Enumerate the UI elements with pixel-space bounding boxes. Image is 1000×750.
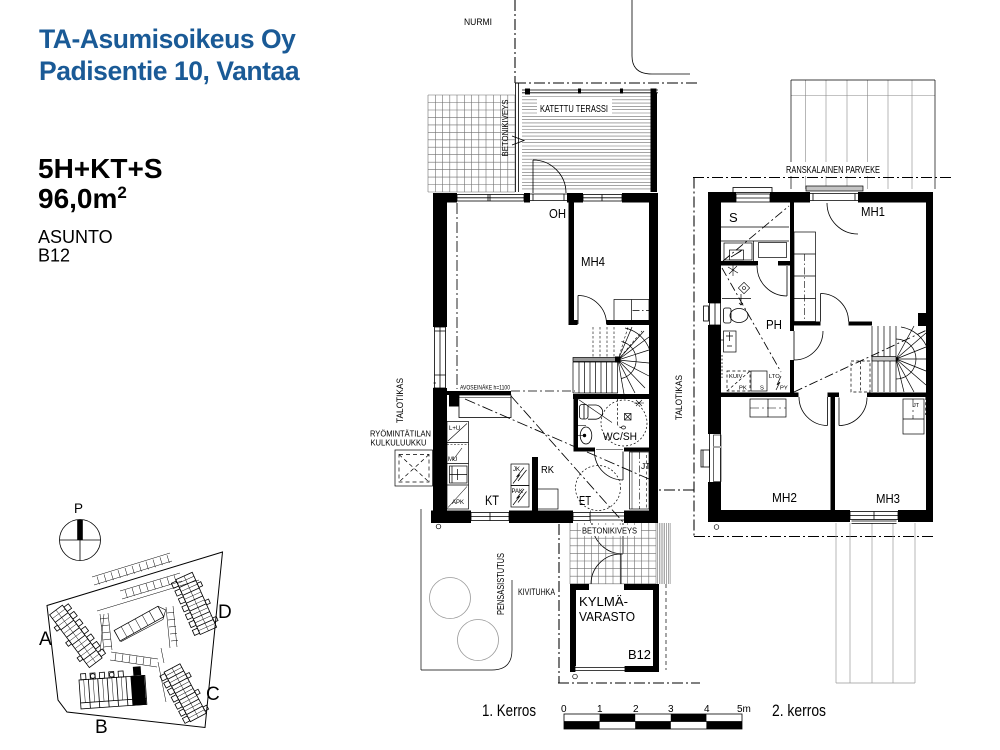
svg-text:B12: B12	[38, 246, 70, 266]
svg-text:KATETTU TERASSI: KATETTU TERASSI	[540, 104, 608, 115]
svg-text:C: C	[206, 684, 220, 705]
svg-text:0: 0	[561, 704, 567, 715]
svg-text:VARASTO: VARASTO	[579, 609, 635, 624]
svg-text:3: 3	[668, 704, 674, 715]
svg-text:TALOTIKAS: TALOTIKAS	[674, 375, 684, 420]
svg-text:KUIV: KUIV	[729, 374, 743, 380]
svg-text:JT: JT	[913, 403, 920, 409]
svg-text:OH: OH	[549, 206, 566, 221]
svg-text:2. kerros: 2. kerros	[772, 702, 826, 720]
svg-text:TA-Asumisoikeus Oy: TA-Asumisoikeus Oy	[39, 24, 296, 54]
svg-text:MU: MU	[448, 457, 457, 463]
svg-text:B: B	[95, 717, 108, 738]
svg-text:1. Kerros: 1. Kerros	[482, 702, 536, 720]
svg-text:1: 1	[597, 704, 603, 715]
svg-text:KULKULUUKKU: KULKULUUKKU	[371, 439, 427, 448]
svg-text:KIVITUHKA: KIVITUHKA	[518, 587, 555, 598]
svg-text:P: P	[74, 501, 83, 516]
svg-text:PY: PY	[780, 386, 788, 392]
svg-text:MH4: MH4	[581, 254, 605, 269]
svg-text:LTO: LTO	[769, 374, 780, 380]
svg-text:KYLMÄ-: KYLMÄ-	[579, 594, 628, 609]
svg-text:D: D	[218, 602, 232, 623]
svg-text:L+U: L+U	[449, 426, 460, 432]
svg-text:RANSKALAINEN PARVEKE: RANSKALAINEN PARVEKE	[786, 165, 880, 176]
svg-text:PK: PK	[739, 386, 747, 392]
svg-text:2: 2	[633, 704, 639, 715]
svg-text:JT: JT	[641, 461, 650, 471]
svg-text:S: S	[729, 210, 738, 225]
svg-text:RYÖMINTÄTILAN: RYÖMINTÄTILAN	[370, 429, 431, 439]
svg-text:TALOTIKAS: TALOTIKAS	[395, 378, 405, 423]
svg-text:AVOSEINÄKE h=1100: AVOSEINÄKE h=1100	[460, 384, 510, 392]
svg-text:MH3: MH3	[876, 491, 900, 506]
svg-text:MH1: MH1	[861, 204, 885, 219]
svg-text:KT: KT	[485, 493, 499, 508]
svg-text:JK: JK	[513, 467, 520, 473]
svg-text:BETONIKIVEYS: BETONIKIVEYS	[582, 527, 637, 536]
svg-text:BETONIKIVEYS: BETONIKIVEYS	[500, 99, 510, 156]
svg-text:5m: 5m	[737, 704, 751, 715]
svg-text:PH: PH	[766, 317, 782, 332]
svg-text:PAK: PAK	[512, 489, 524, 495]
svg-text:APK: APK	[452, 500, 464, 506]
svg-text:ET: ET	[579, 493, 591, 508]
svg-text:A: A	[39, 629, 52, 650]
svg-text:S: S	[760, 386, 764, 392]
svg-text:PENSASISTUTUS: PENSASISTUTUS	[496, 553, 507, 615]
svg-text:96,0m2: 96,0m2	[38, 183, 127, 214]
svg-text:MH2: MH2	[772, 490, 797, 505]
svg-text:RK: RK	[541, 464, 554, 476]
svg-text:5H+KT+S: 5H+KT+S	[38, 153, 163, 184]
svg-text:Padisentie 10, Vantaa: Padisentie 10, Vantaa	[39, 56, 300, 86]
svg-text:ASUNTO: ASUNTO	[38, 227, 113, 247]
svg-text:B12: B12	[628, 647, 651, 662]
svg-text:WC/SH: WC/SH	[603, 431, 637, 443]
svg-text:4: 4	[704, 704, 710, 715]
svg-text:NURMI: NURMI	[464, 17, 492, 27]
